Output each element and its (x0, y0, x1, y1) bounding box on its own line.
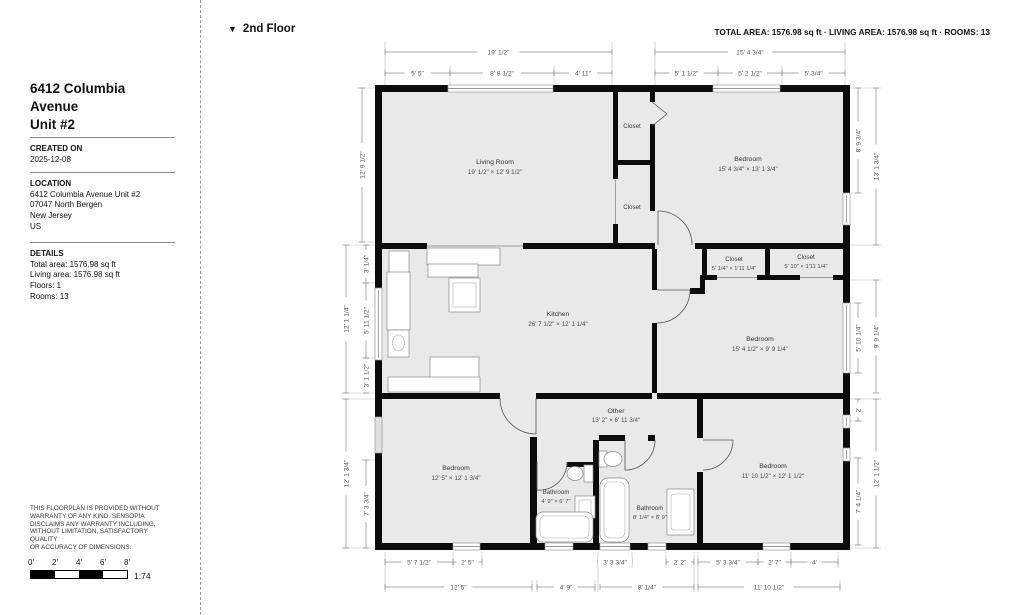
dim-label: 5' 10 1/4" (855, 324, 862, 352)
dimension: 12' 1 1/4" (342, 245, 351, 393)
dimension: 2' 7" (758, 558, 791, 567)
svg-text:Bedroom: Bedroom (734, 156, 762, 163)
dim-label: 12' 1 1/2" (873, 459, 880, 487)
dimension: 2' (854, 399, 863, 421)
toilet-bowl (567, 467, 583, 481)
dimension: 12' 1 3/4" (342, 399, 351, 548)
svg-text:Bedroom: Bedroom (442, 465, 470, 472)
dim-label: 11' 10 1/2" (754, 584, 785, 591)
dim-label: 5' 1 1/2" (675, 70, 699, 77)
svg-text:Closet: Closet (797, 254, 815, 261)
svg-text:5' 1/4" × 1'11 1/4": 5' 1/4" × 1'11 1/4" (712, 266, 757, 272)
dimension: 12' 9 1/2" (358, 88, 367, 242)
dimension: 11' 10 1/2" (698, 583, 840, 592)
dimension: 5' 3/4" (782, 69, 845, 78)
dimension: 2' 2" (666, 558, 694, 567)
dimension: 5' 10 1/4" (854, 303, 863, 373)
kitchen-counter (427, 248, 500, 265)
shower-inner (671, 494, 690, 530)
dim-label: 12' 1 1/4" (343, 305, 350, 333)
dim-label: 7' 4 1/4" (855, 489, 862, 513)
dimension: 3' 1/4" (362, 245, 371, 283)
dim-label: 7' 3 3/4" (363, 491, 370, 515)
kitchen-counter (428, 264, 478, 277)
sink-basin (393, 335, 405, 351)
svg-text:19' 1/2" × 12' 9 1/2": 19' 1/2" × 12' 9 1/2" (468, 169, 522, 176)
dim-label: 19' 1/2" (488, 49, 511, 56)
dim-label: 2' 5" (461, 559, 474, 566)
svg-text:8' 1/4" × 8' 9": 8' 1/4" × 8' 9" (633, 515, 667, 521)
dim-label: 13' 1 3/4" (873, 152, 880, 180)
floor-plan: 19' 1/2" 5' 5" 8' 8 1/2" 4' 11" 15' 4 3/… (0, 0, 1024, 615)
dimension: 5' 1 1/2" (655, 69, 718, 78)
dim-label: 9' 9 1/4" (873, 324, 880, 348)
svg-text:26' 7 1/2" × 12' 1 1/4": 26' 7 1/2" × 12' 1 1/4" (528, 321, 588, 328)
svg-text:15' 4 1/2" × 9' 9 1/4": 15' 4 1/2" × 9' 9 1/4" (732, 346, 788, 353)
dim-label: 5' 3 3/4" (716, 559, 740, 566)
dim-label: 15' 4 3/4" (736, 49, 764, 56)
svg-text:12' 5" × 12' 1 3/4": 12' 5" × 12' 1 3/4" (431, 475, 480, 482)
dim-label: 4' 9" (560, 584, 573, 591)
dim-label: 12' 1 3/4" (343, 459, 350, 487)
kitchen-counter (430, 357, 479, 378)
dimension: 8' 1/4" (600, 583, 694, 592)
dim-label: 8' 8 1/2" (490, 70, 514, 77)
dimension: 8' 8 1/2" (450, 69, 554, 78)
dimension: 8' 9 3/4" (854, 88, 863, 193)
svg-text:Bathroom: Bathroom (637, 505, 664, 512)
dimension: 3' 3 3/4" (598, 558, 632, 567)
toilet-tank (584, 465, 593, 482)
dimension: 13' 1 3/4" (872, 88, 881, 245)
dimension: 4' (791, 558, 838, 567)
dimension: 4' 11" (554, 69, 612, 78)
dim-label: 5' 2 1/2" (738, 70, 762, 77)
dim-label: 8' 9 3/4" (855, 128, 862, 152)
svg-text:15' 4 3/4" × 13' 1 3/4": 15' 4 3/4" × 13' 1 3/4" (718, 166, 778, 173)
dimension: 12' 5" (385, 583, 532, 592)
dimension: 15' 4 3/4" (655, 48, 845, 57)
toilet-bowl (604, 452, 622, 467)
dim-label: 2' 2" (674, 559, 687, 566)
dimension: 9' 9 1/4" (872, 280, 881, 393)
dim-label: 5' 7 1/2" (407, 559, 431, 566)
dim-label: 4' (812, 559, 817, 566)
dim-label: 4' 11" (575, 70, 592, 77)
kitchen-counter (387, 272, 410, 330)
dimension: 5' 3 3/4" (698, 558, 758, 567)
dimension: 19' 1/2" (385, 48, 612, 57)
kitchen-counter (388, 377, 480, 392)
dim-label: 2' (855, 408, 862, 413)
stove-top (453, 283, 476, 307)
dim-label: 3' 1 1/2" (363, 363, 370, 387)
svg-text:5' 10" × 1'11 1/4": 5' 10" × 1'11 1/4" (784, 264, 827, 270)
svg-text:Living Room: Living Room (476, 159, 514, 166)
room-label-closet-top: Closet (623, 123, 641, 130)
svg-text:Kitchen: Kitchen (547, 311, 570, 318)
dimension: 4' 9" (537, 583, 595, 592)
dim-label: 3' 3 3/4" (603, 559, 627, 566)
svg-text:Other: Other (608, 408, 626, 415)
dimension: 3' 1 1/2" (362, 358, 371, 393)
dimension: 5' 7 1/2" (385, 558, 453, 567)
dimension: 2' 5" (453, 558, 482, 567)
svg-text:4' 9" × 6' 7": 4' 9" × 6' 7" (541, 499, 570, 505)
svg-text:Bedroom: Bedroom (759, 463, 787, 470)
dim-label: 2' 7" (768, 559, 781, 566)
fridge (389, 251, 409, 274)
dim-label: 5' 11 1/2" (363, 306, 370, 334)
bathtub-inner (604, 482, 625, 538)
room-label-closet-mid: Closet (623, 204, 641, 211)
svg-text:Closet: Closet (725, 256, 743, 263)
dimension: 5' 5" (385, 69, 450, 78)
dim-label: 5' 3/4" (804, 70, 823, 77)
dimension: 12' 1 1/2" (872, 399, 881, 548)
dim-label: 5' 5" (411, 70, 424, 77)
dim-label: 12' 5" (450, 584, 467, 591)
bathtub-inner (540, 516, 589, 538)
svg-text:13' 2" × 6' 11 3/4": 13' 2" × 6' 11 3/4" (592, 417, 641, 424)
svg-text:Bathroom: Bathroom (543, 489, 570, 496)
dimension: 5' 11 1/2" (362, 283, 371, 358)
dimension: 5' 2 1/2" (718, 69, 782, 78)
svg-text:11' 10 1/2" × 12' 1 1/2": 11' 10 1/2" × 12' 1 1/2" (742, 473, 805, 480)
svg-text:Bedroom: Bedroom (746, 336, 774, 343)
dimension: 7' 4 1/4" (854, 458, 863, 545)
dimension: 7' 3 3/4" (362, 460, 371, 548)
dim-label: 3' 1/4" (363, 254, 370, 273)
dim-label: 12' 9 1/2" (359, 151, 366, 179)
dim-label: 8' 1/4" (638, 584, 657, 591)
